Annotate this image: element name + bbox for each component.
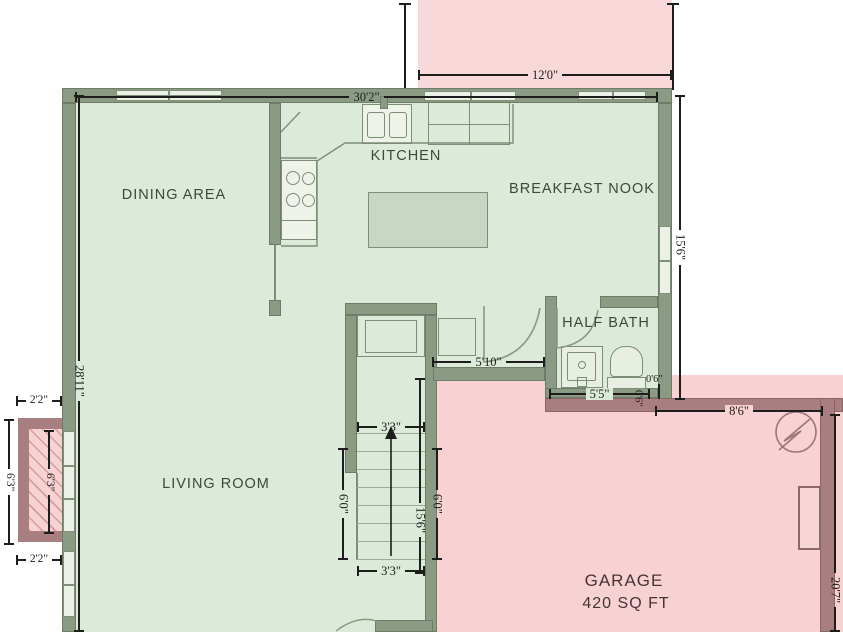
counter-edge-line	[281, 104, 513, 246]
bottom-door-arc	[336, 619, 377, 631]
hall-door-arc	[484, 306, 540, 362]
electrical-symbol-icon	[776, 412, 816, 452]
dim-hall-width: 5'10"	[432, 355, 545, 369]
dim-label: 3'3"	[377, 421, 405, 434]
dim-label: 6'3"	[3, 469, 15, 495]
dim-garage-width: 8'6"	[655, 404, 823, 418]
floor-plan: 12'0" 30'2" 15'6" 28'11" 2'2" 2'2" 6'3" …	[0, 0, 843, 632]
dim-label: 6'0"	[337, 490, 350, 518]
dim-label: 5'10"	[471, 356, 505, 369]
dim-nook-height: 15'6"	[673, 95, 687, 400]
dim-label: 15'6"	[674, 230, 687, 264]
dim-porch-bottom: 2'2"	[16, 553, 62, 567]
dim-porch-top: 2'2"	[16, 394, 62, 408]
label-half-bath: HALF BATH	[562, 315, 650, 331]
dim-bath-offset-vertical: 0'6"	[632, 390, 643, 407]
dim-porch-inner: 6'3"	[42, 430, 56, 534]
dim-label: 15'6"	[414, 503, 427, 537]
dim-cutoff-right-line	[672, 4, 674, 90]
dim-stair-wall: 15'6"	[413, 378, 427, 574]
dim-bath-offset: 0'6"	[646, 375, 663, 386]
dim-label: 2'2"	[26, 395, 52, 407]
dim-stairs-left: 6'0"	[336, 448, 350, 560]
dim-label: 5'5"	[586, 388, 614, 401]
dim-deck-width: 12'0"	[418, 68, 672, 82]
label-dining-area: DINING AREA	[122, 187, 226, 203]
dim-label: 12'0"	[528, 69, 562, 82]
dim-label: 0'6"	[646, 374, 663, 385]
dim-label: 8'6"	[725, 405, 753, 418]
dim-label: 0'6"	[633, 390, 644, 407]
dim-label: 3'3"	[377, 565, 405, 578]
dim-label: 20'7"	[829, 573, 842, 607]
dim-bath-offset-line	[658, 384, 660, 399]
label-breakfast-nook: BREAKFAST NOOK	[509, 181, 655, 197]
label-garage-sqft: 420 SQ FT	[582, 595, 669, 613]
label-garage: GARAGE	[585, 571, 664, 591]
label-kitchen: KITCHEN	[371, 148, 442, 164]
dim-label: 2'2"	[26, 554, 52, 566]
dim-stairs-right: 6'0"	[430, 448, 444, 560]
dim-garage-height: 20'7"	[828, 414, 842, 632]
dim-left-height: 28'11"	[72, 95, 86, 632]
dim-label: 6'3"	[43, 469, 55, 495]
label-living-room: LIVING ROOM	[162, 476, 270, 492]
dim-label: 28'11"	[73, 361, 86, 401]
electrical-symbol-bolt-icon	[779, 419, 810, 450]
dim-main-width: 30'2"	[75, 90, 658, 104]
dim-porch-outer: 6'3"	[2, 419, 16, 545]
dim-label: 6'0"	[431, 490, 444, 518]
dim-label: 30'2"	[349, 91, 383, 104]
dim-cutoff-left-line	[404, 4, 406, 88]
